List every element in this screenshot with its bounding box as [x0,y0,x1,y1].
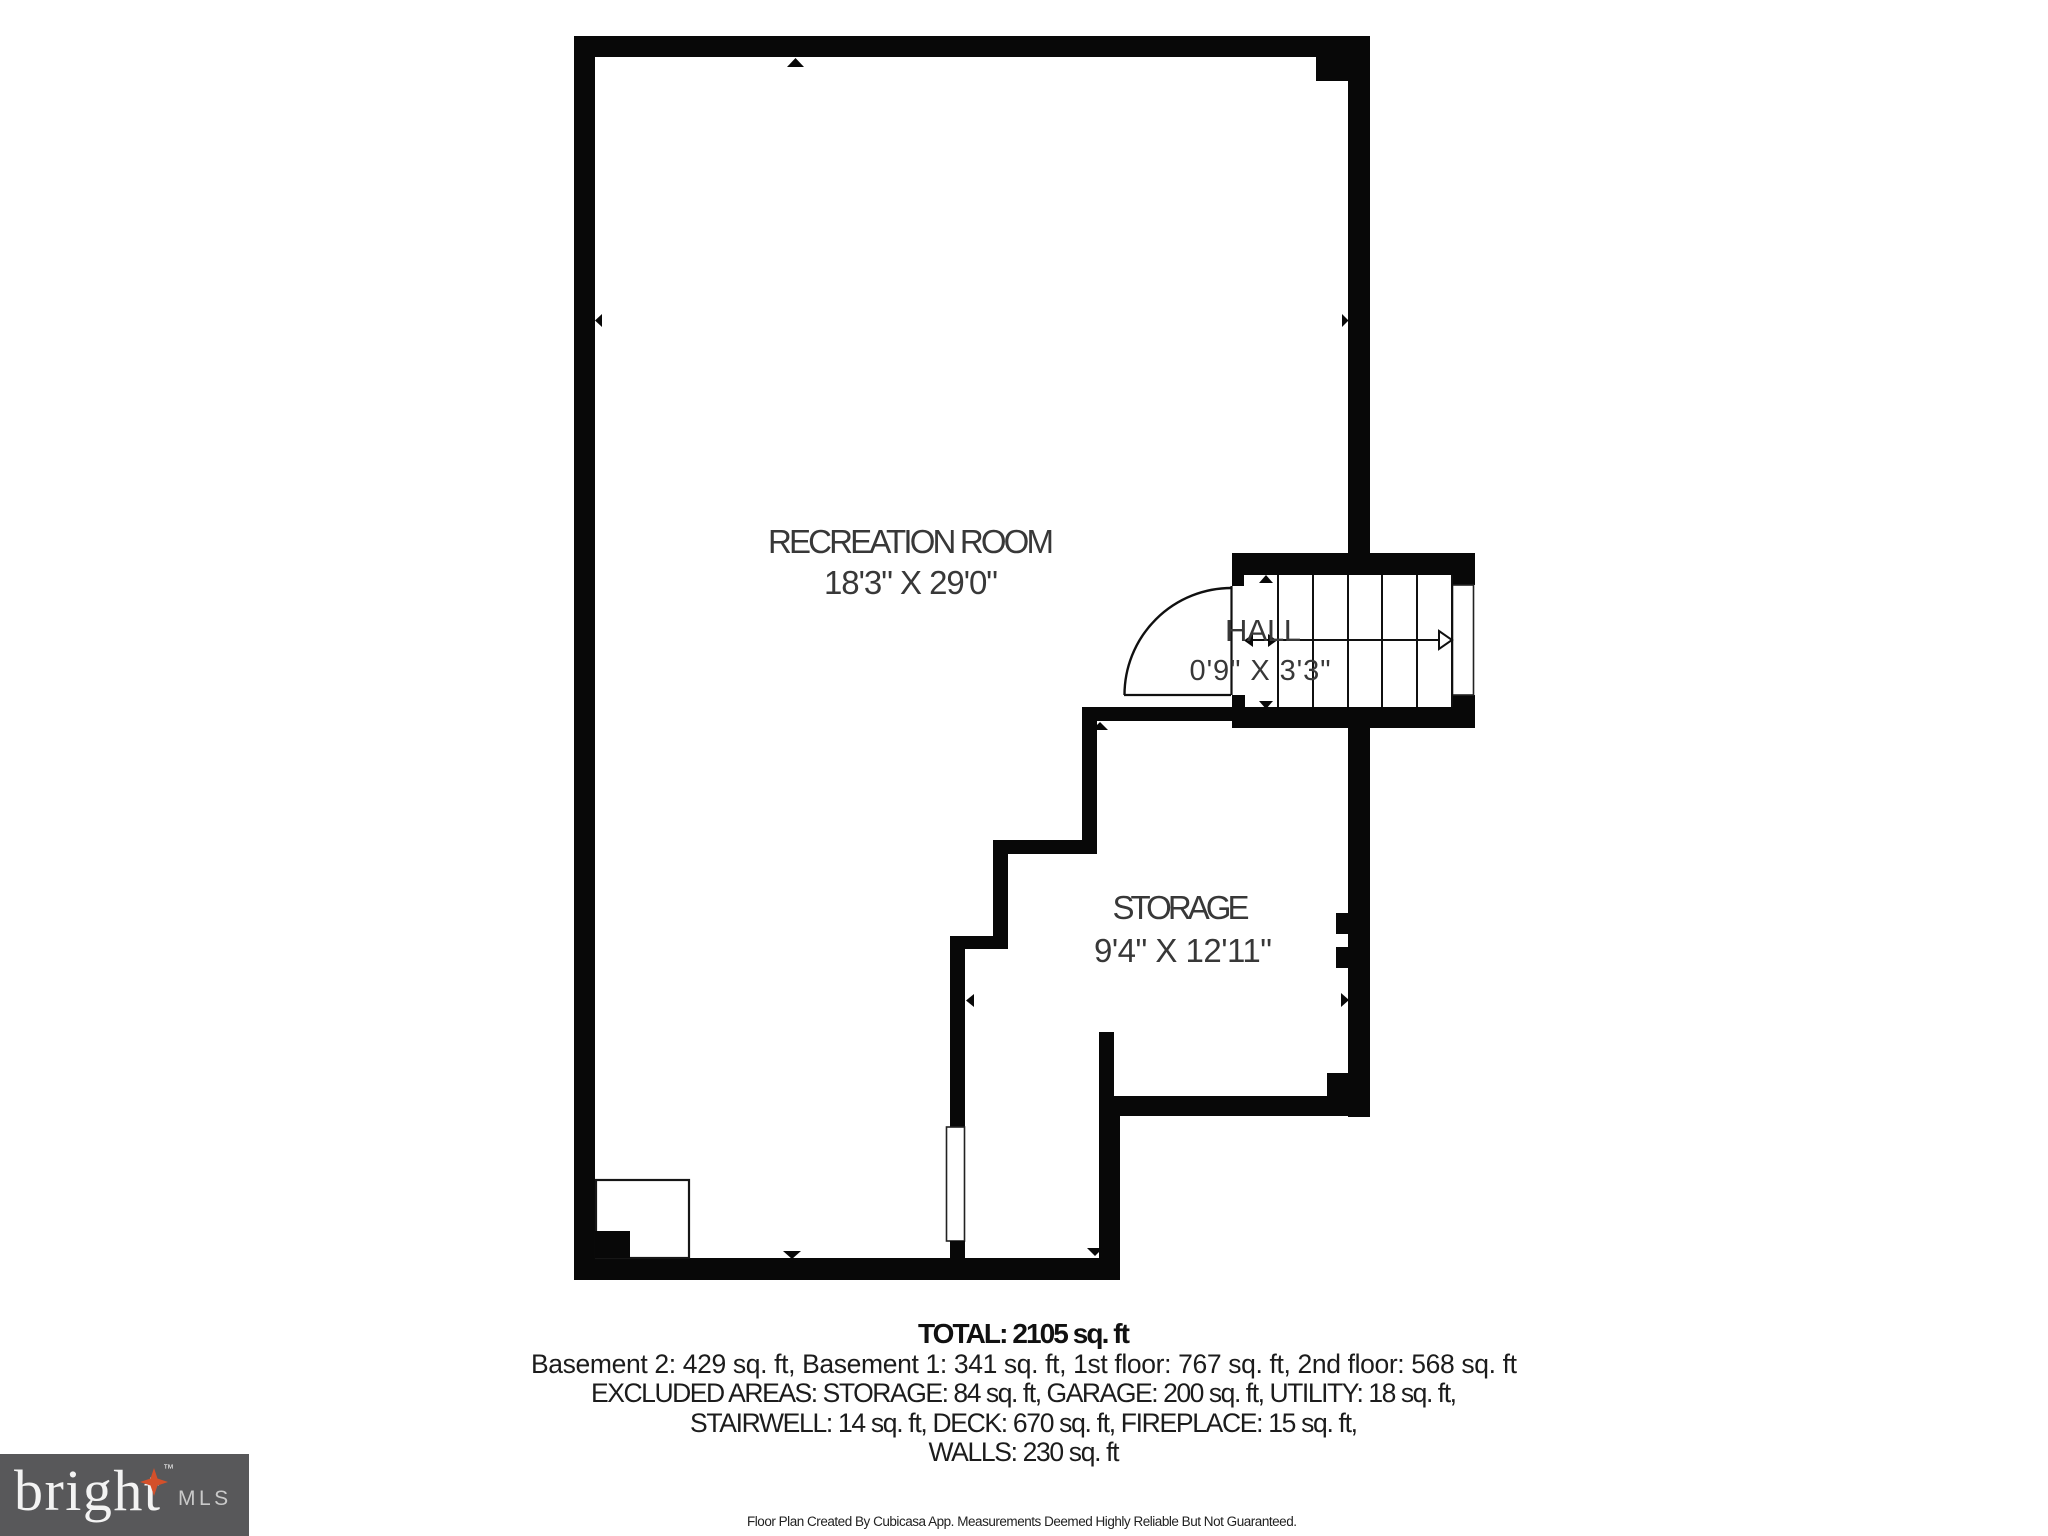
svg-text:MLS: MLS [178,1487,232,1510]
svg-text:STORAGE: STORAGE [1113,889,1250,926]
svg-text:WALLS: 230 sq. ft: WALLS: 230 sq. ft [929,1437,1121,1467]
svg-text:™: ™ [163,1463,174,1475]
svg-text:0'9" X 3'3": 0'9" X 3'3" [1190,655,1331,687]
svg-text:9'4" X 12'11": 9'4" X 12'11" [1094,932,1272,969]
svg-text:RECREATION ROOM: RECREATION ROOM [768,523,1054,560]
svg-text:18'3" X 29'0": 18'3" X 29'0" [824,564,998,601]
svg-text:TOTAL: 2105 sq. ft: TOTAL: 2105 sq. ft [918,1318,1130,1349]
svg-text:Basement 2: 429 sq. ft, Baseme: Basement 2: 429 sq. ft, Basement 1: 341 … [531,1349,1518,1379]
svg-text:HALL: HALL [1225,613,1301,648]
svg-text:STAIRWELL: 14 sq. ft, DECK: 67: STAIRWELL: 14 sq. ft, DECK: 670 sq. ft, … [690,1408,1358,1438]
svg-text:Floor Plan Created By Cubicasa: Floor Plan Created By Cubicasa App. Meas… [747,1514,1297,1529]
svg-text:bright: bright [14,1458,160,1523]
svg-text:EXCLUDED AREAS: STORAGE: 84 sq: EXCLUDED AREAS: STORAGE: 84 sq. ft, GARA… [591,1378,1457,1408]
